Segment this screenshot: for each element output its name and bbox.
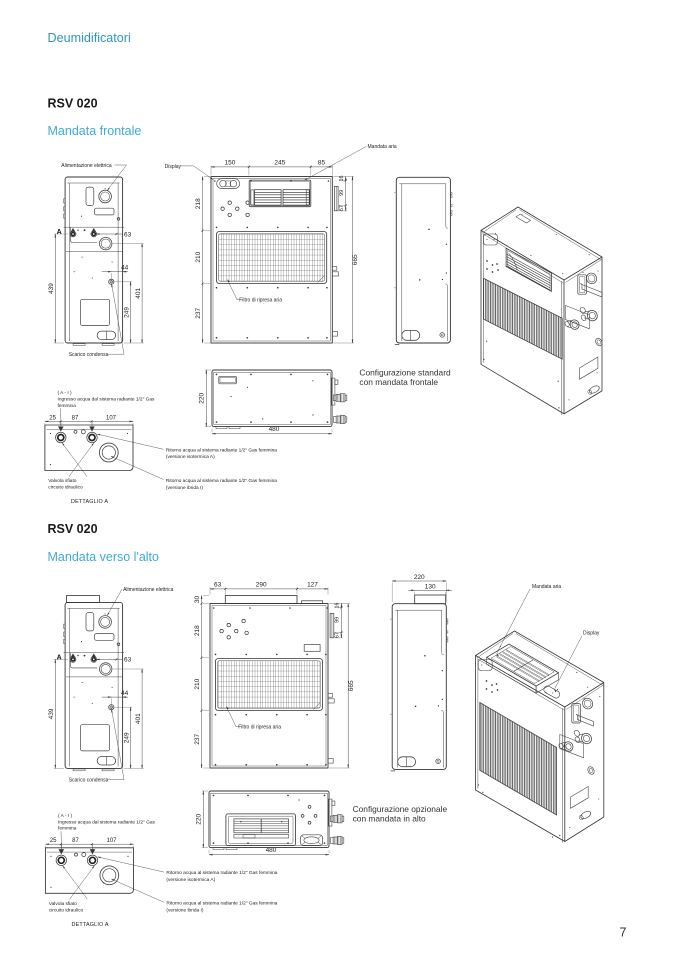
svg-text:RSV 020: RSV 020 <box>48 97 98 111</box>
svg-text:99: 99 <box>339 190 345 196</box>
svg-text:A: A <box>57 229 62 236</box>
svg-text:218: 218 <box>195 198 202 209</box>
svg-text:220: 220 <box>414 574 425 581</box>
svg-text:Valvola sfiato: Valvola sfiato <box>49 901 78 907</box>
svg-text:107: 107 <box>106 838 117 844</box>
svg-text:Ritorno acqua al sistema radia: Ritorno acqua al sistema radiante 1/2" G… <box>166 447 277 453</box>
svg-text:85: 85 <box>318 160 326 167</box>
svg-text:25: 25 <box>50 838 57 844</box>
svg-text:circuito idraulico: circuito idraulico <box>48 485 83 491</box>
svg-text:67: 67 <box>335 632 341 638</box>
svg-text:Filtro di ripresa aria: Filtro di ripresa aria <box>238 725 281 731</box>
svg-text:Configurazione standard: Configurazione standard <box>359 367 451 377</box>
svg-text:237: 237 <box>195 307 202 318</box>
svg-text:210: 210 <box>195 251 202 262</box>
svg-text:130: 130 <box>425 583 436 590</box>
svg-text:245: 245 <box>274 160 285 167</box>
svg-text:Ingresso acqua dal sistema rad: Ingresso acqua dal sistema radiante 1/2"… <box>58 819 155 825</box>
svg-text:127: 127 <box>307 582 318 589</box>
svg-text:femmina: femmina <box>58 403 77 409</box>
svg-text:665: 665 <box>348 680 355 691</box>
svg-text:249: 249 <box>123 307 130 318</box>
svg-text:Configurazione opzionale: Configurazione opzionale <box>353 804 448 814</box>
svg-text:(versione isotermica A): (versione isotermica A) <box>166 454 215 460</box>
svg-text:439: 439 <box>48 708 55 719</box>
svg-text:Alimentazione elettrica: Alimentazione elettrica <box>61 163 112 169</box>
svg-text:401: 401 <box>135 287 142 298</box>
svg-text:25: 25 <box>49 415 56 421</box>
svg-text:480: 480 <box>266 847 277 854</box>
svg-text:con mandata in alto: con mandata in alto <box>353 814 426 824</box>
svg-text:Ritorno acqua al sistema radia: Ritorno acqua al sistema radiante 1/2" G… <box>166 901 277 907</box>
svg-text:( A - I ): ( A - I ) <box>58 390 73 396</box>
svg-text:150: 150 <box>225 160 236 167</box>
svg-text:249: 249 <box>123 732 130 743</box>
svg-text:RSV 020: RSV 020 <box>48 522 98 536</box>
svg-text:210: 210 <box>194 678 201 689</box>
svg-text:A: A <box>57 654 62 661</box>
svg-text:DETTAGLIO A: DETTAGLIO A <box>71 499 108 505</box>
svg-text:99: 99 <box>335 617 341 623</box>
svg-text:87: 87 <box>72 838 79 844</box>
svg-text:218: 218 <box>194 625 201 636</box>
svg-text:con mandata frontale: con mandata frontale <box>359 377 438 387</box>
svg-text:(versione ibrida I): (versione ibrida I) <box>166 908 203 914</box>
svg-text:Valvola sfiato: Valvola sfiato <box>48 478 77 484</box>
svg-text:665: 665 <box>352 254 359 265</box>
svg-text:Mandata aria: Mandata aria <box>368 144 397 150</box>
svg-text:67: 67 <box>339 205 345 211</box>
svg-text:( A - I ): ( A - I ) <box>58 813 73 819</box>
svg-text:237: 237 <box>194 733 201 744</box>
svg-text:Display: Display <box>165 164 182 170</box>
svg-text:Ritorno acqua al sistema radia: Ritorno acqua al sistema radiante 1/2" G… <box>166 478 277 484</box>
svg-text:Mandata verso l'alto: Mandata verso l'alto <box>48 550 160 564</box>
svg-text:87: 87 <box>72 415 79 421</box>
svg-text:439: 439 <box>48 283 55 294</box>
svg-text:63: 63 <box>124 231 132 238</box>
svg-text:(versione isotermica A): (versione isotermica A) <box>166 877 215 883</box>
svg-text:Alimentazione elettrica: Alimentazione elettrica <box>123 587 174 593</box>
svg-text:Display: Display <box>583 631 600 637</box>
svg-text:63: 63 <box>214 582 222 589</box>
svg-text:circuito idraulico: circuito idraulico <box>49 907 84 913</box>
svg-text:Scarico condensa: Scarico condensa <box>69 777 109 783</box>
svg-text:Deumidificatori: Deumidificatori <box>48 31 131 45</box>
svg-text:(versione ibrida I): (versione ibrida I) <box>166 485 203 491</box>
svg-text:Mandata frontale: Mandata frontale <box>48 124 142 138</box>
svg-text:44: 44 <box>121 690 129 697</box>
svg-text:Mandata aria: Mandata aria <box>532 584 561 590</box>
svg-text:Filtro di ripresa aria: Filtro di ripresa aria <box>239 298 282 304</box>
svg-text:Ingresso acqua dal sistema rad: Ingresso acqua dal sistema radiante 1/2"… <box>58 397 155 403</box>
svg-text:480: 480 <box>269 426 280 433</box>
svg-text:401: 401 <box>135 713 142 724</box>
svg-text:107: 107 <box>106 415 117 421</box>
svg-text:44: 44 <box>121 265 129 272</box>
svg-text:Scarico condensa: Scarico condensa <box>69 352 109 358</box>
svg-text:DETTAGLIO A: DETTAGLIO A <box>72 922 109 928</box>
svg-text:63: 63 <box>124 657 132 664</box>
svg-text:30: 30 <box>194 596 201 604</box>
svg-text:femmina: femmina <box>58 826 77 832</box>
svg-text:220: 220 <box>196 813 203 824</box>
svg-text:290: 290 <box>256 582 267 589</box>
svg-text:220: 220 <box>199 392 206 403</box>
svg-text:7: 7 <box>620 926 627 940</box>
svg-text:Ritorno acqua al sistema radia: Ritorno acqua al sistema radiante 1/2" G… <box>166 870 277 876</box>
